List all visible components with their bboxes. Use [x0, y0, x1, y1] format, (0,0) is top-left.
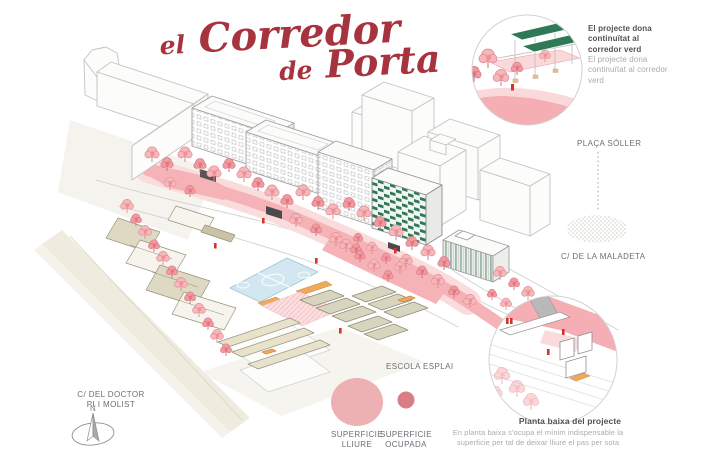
poster-title: el Corredor de Porta [158, 3, 441, 96]
inset-top-right-caption-secondary: El projecte dona continuïtat al corredor… [588, 55, 670, 86]
inset-bottom-right-caption-title: Planta baixa del projecte [495, 416, 645, 427]
legend-circles [331, 378, 415, 426]
title-prefix: el [159, 30, 186, 60]
label-placa-soller: PLAÇA SÓLLER [577, 139, 641, 149]
inset-top-right-caption-primary: El projecte dona continuïtat al corredor… [588, 24, 670, 55]
title-line2-prefix: de [278, 55, 313, 86]
label-escola-esplai: ESCOLA ESPLAI [386, 362, 453, 372]
inset-top-right [467, 15, 586, 130]
title-line-2: de Porta [278, 36, 442, 89]
legend-free-surface-circle [331, 378, 383, 426]
legend-occupied-surface-label: SUPERFICIE OCUPADA [376, 430, 436, 450]
inset-bottom-right [489, 295, 618, 424]
title-line2-main: Porta [324, 36, 441, 87]
label-carrer-doctor: C/ DEL DOCTOR PI I MOLIST [76, 390, 146, 410]
label-carrer-maladeta: C/ DE LA MALADETA [561, 252, 645, 262]
north-arrow [71, 413, 115, 447]
inset-bottom-right-caption-body: En planta baixa s'ocupa el mínim indispe… [452, 428, 624, 448]
project-poster: el Corredor de Porta El projecte dona co… [0, 0, 720, 459]
placa-soller-area [567, 152, 627, 243]
legend-occupied-surface-circle [398, 392, 415, 409]
north-label: N [90, 404, 96, 414]
